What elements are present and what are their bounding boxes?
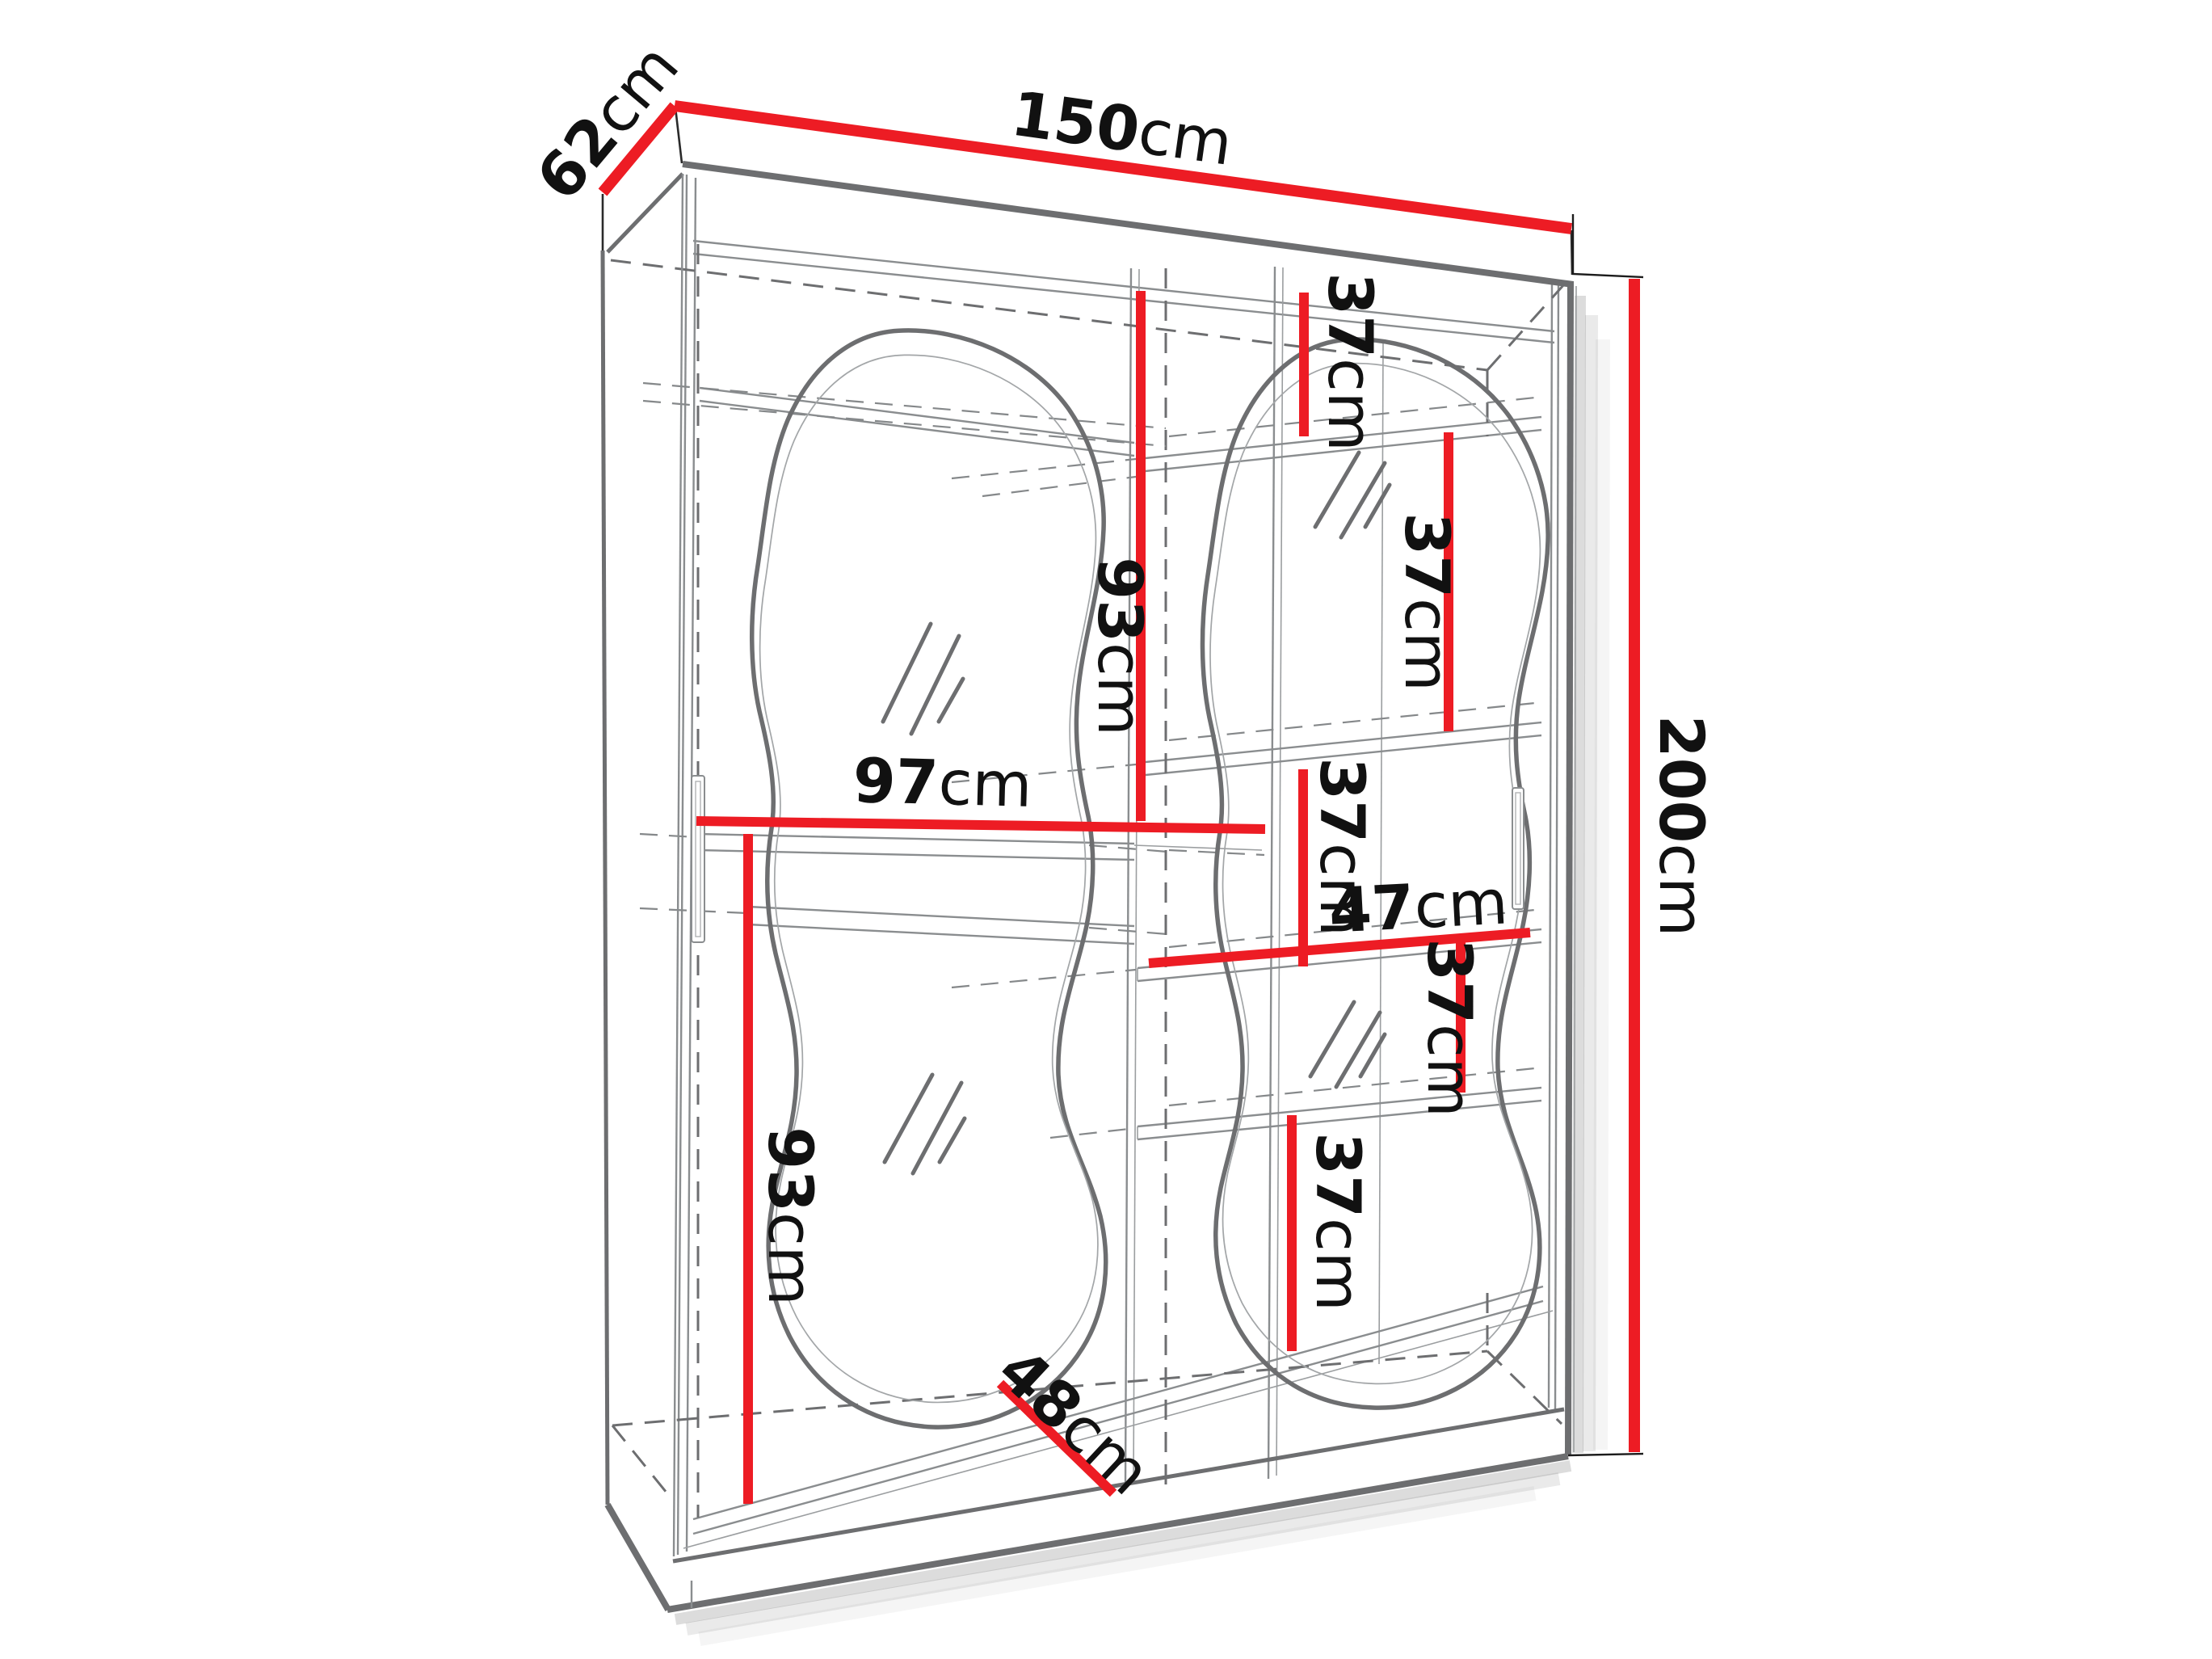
label-37-2: 37cm (1391, 512, 1463, 692)
label-93-lower: 93cm (755, 1126, 826, 1306)
label-height-200: 200cm (1646, 715, 1718, 937)
label-97: 97cm (852, 744, 1033, 821)
dim-tick-bottom-right (1568, 1454, 1643, 1455)
label-47: 47cm (1327, 865, 1510, 946)
right-door-handle (1512, 788, 1524, 909)
dim-tick-top-right (1573, 214, 1643, 277)
label-93-upper: 93cm (1084, 557, 1156, 736)
wardrobe-dimension-diagram: 150cm 62cm 200cm 97cm 93cm 93cm 37cm 37c… (0, 0, 2212, 1659)
label-37-5: 37cm (1302, 1132, 1374, 1312)
label-37-4: 37cm (1414, 938, 1486, 1118)
right-outer-edge (1568, 281, 1571, 1455)
diagram-canvas: 150cm 62cm 200cm 97cm 93cm 93cm 37cm 37c… (0, 0, 2212, 1659)
label-37-1: 37cm (1314, 272, 1386, 452)
left-door-handle (692, 776, 704, 942)
